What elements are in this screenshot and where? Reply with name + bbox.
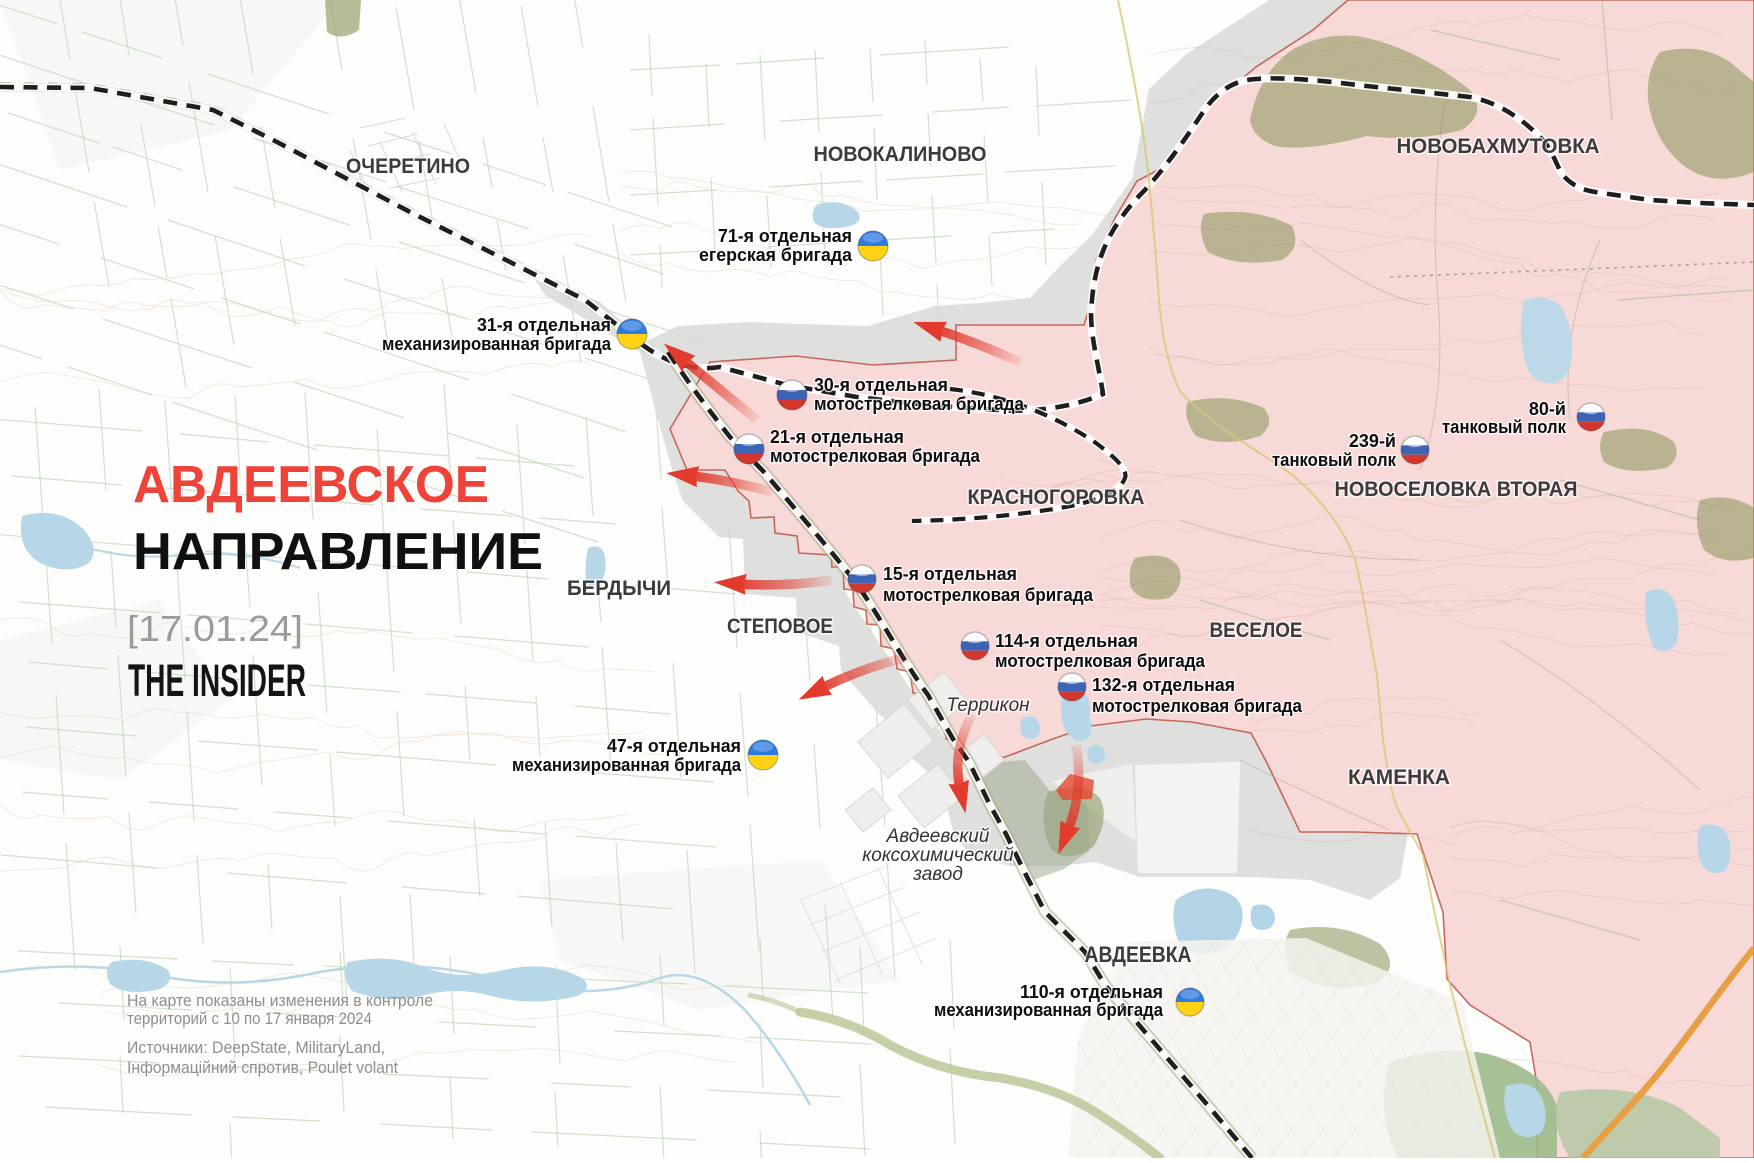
svg-text:Террикон: Террикон — [946, 695, 1030, 716]
svg-text:НОВОБАХМУТОВКА: НОВОБАХМУТОВКА — [1397, 135, 1600, 158]
svg-text:АВДЕЕВСКОЕ: АВДЕЕВСКОЕ — [133, 456, 489, 514]
svg-text:[17.01.24]: [17.01.24] — [127, 608, 303, 649]
svg-text:завод: завод — [912, 864, 963, 885]
svg-text:НАПРАВЛЕНИЕ: НАПРАВЛЕНИЕ — [133, 523, 543, 581]
svg-text:мотострелковая бригада: мотострелковая бригада — [883, 585, 1094, 605]
svg-text:110-я отдельная: 110-я отдельная — [1020, 982, 1163, 1002]
svg-text:механизированная бригада: механизированная бригада — [512, 755, 742, 775]
svg-text:ОЧЕРЕТИНО: ОЧЕРЕТИНО — [346, 155, 470, 178]
svg-text:THE INSIDER: THE INSIDER — [128, 655, 306, 706]
svg-text:47-я отдельная: 47-я отдельная — [607, 736, 741, 756]
svg-text:80-й: 80-й — [1529, 399, 1566, 419]
svg-text:танковый полк: танковый полк — [1272, 450, 1397, 470]
svg-text:егерская бригада: егерская бригада — [699, 245, 853, 265]
svg-text:239-й: 239-й — [1349, 431, 1396, 451]
svg-text:мотострелковая бригада: мотострелковая бригада — [770, 446, 981, 466]
svg-text:НОВОСЕЛОВКА ВТОРАЯ: НОВОСЕЛОВКА ВТОРАЯ — [1335, 478, 1578, 501]
svg-text:Источники: DeepState, Military: Источники: DeepState, MilitaryLand, — [127, 1038, 385, 1057]
svg-text:СТЕПОВОЕ: СТЕПОВОЕ — [727, 615, 833, 638]
svg-text:132-я отдельная: 132-я отдельная — [1092, 675, 1235, 695]
svg-text:территорий с 10 по 17 января 2: территорий с 10 по 17 января 2024 — [127, 1009, 372, 1028]
svg-text:танковый полк: танковый полк — [1442, 417, 1567, 437]
svg-text:мотострелковая бригада: мотострелковая бригада — [1092, 696, 1303, 716]
svg-text:71-я отдельная: 71-я отдельная — [718, 226, 852, 246]
svg-text:114-я отдельная: 114-я отдельная — [995, 631, 1138, 651]
svg-text:коксохимический: коксохимический — [862, 845, 1014, 866]
svg-text:21-я отдельная: 21-я отдельная — [770, 427, 904, 447]
svg-text:На карте показаны изменения в: На карте показаны изменения в контроле — [127, 991, 433, 1010]
svg-text:НОВОКАЛИНОВО: НОВОКАЛИНОВО — [814, 143, 987, 166]
svg-text:30-я отдельная: 30-я отдельная — [814, 375, 948, 395]
svg-text:АВДЕЕВКА: АВДЕЕВКА — [1085, 942, 1192, 967]
svg-text:механизированная бригада: механизированная бригада — [382, 334, 612, 354]
svg-text:Авдеевский: Авдеевский — [886, 826, 990, 847]
svg-text:КАМЕНКА: КАМЕНКА — [1348, 766, 1450, 789]
svg-text:Інформаційний спротив, Poulet: Інформаційний спротив, Poulet volant — [127, 1058, 398, 1077]
svg-text:ВЕСЕЛОЕ: ВЕСЕЛОЕ — [1210, 619, 1303, 642]
svg-text:31-я отдельная: 31-я отдельная — [477, 315, 611, 335]
svg-text:КРАСНОГОРОВКА: КРАСНОГОРОВКА — [968, 486, 1145, 509]
svg-text:15-я отдельная: 15-я отдельная — [883, 564, 1017, 584]
svg-text:мотострелковая бригада: мотострелковая бригада — [814, 394, 1025, 414]
svg-text:мотострелковая бригада: мотострелковая бригада — [995, 651, 1206, 671]
svg-text:механизированная бригада: механизированная бригада — [934, 1000, 1164, 1020]
svg-text:БЕРДЫЧИ: БЕРДЫЧИ — [567, 577, 671, 600]
